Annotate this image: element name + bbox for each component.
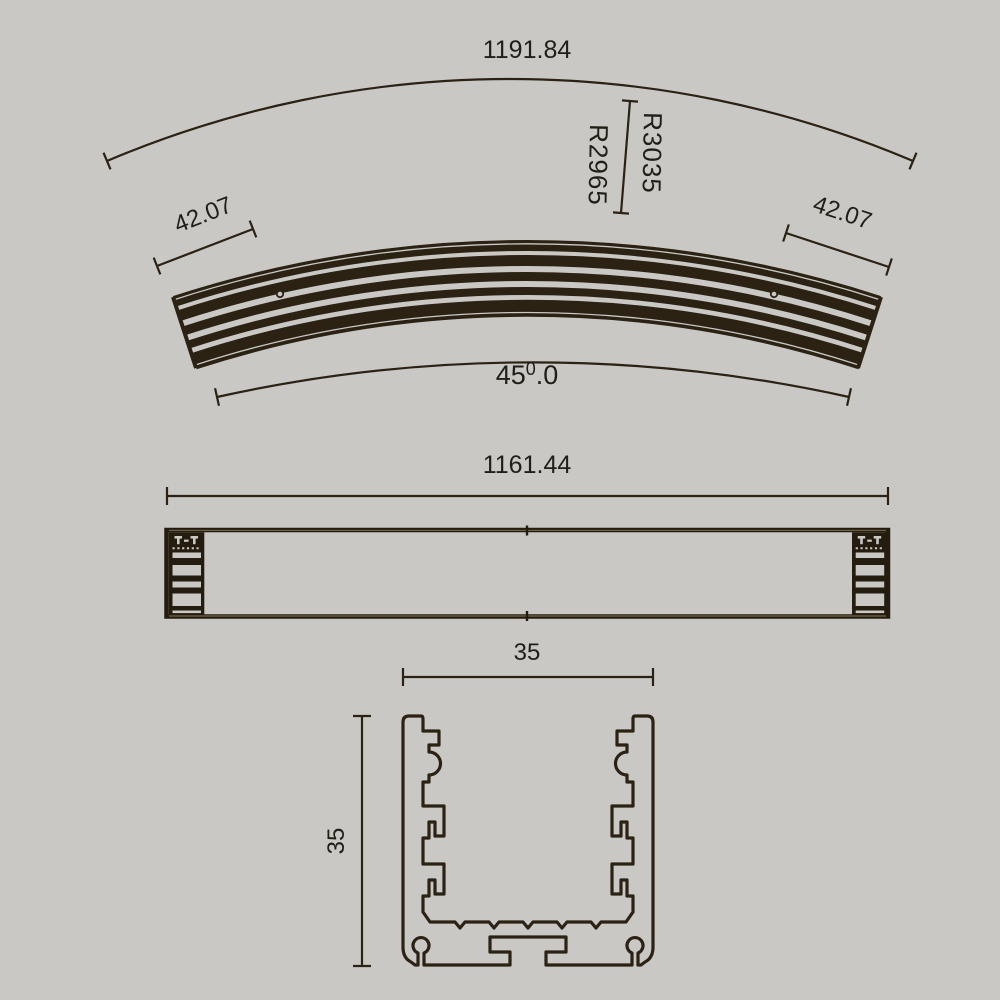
angle-dimension: 450.0 [215, 359, 851, 406]
arc-length-label: 1191.84 [483, 36, 572, 64]
cross-section-outline [403, 716, 653, 965]
cap-slot-2 [856, 565, 885, 576]
side-length-label: 1161.44 [483, 451, 572, 479]
cap-slot-4 [856, 594, 885, 607]
end-width-right-label: 42.07 [810, 191, 876, 235]
cap-slot-4 [173, 594, 202, 607]
side-view: 1161.44 [167, 451, 889, 621]
profile-side-body [167, 530, 889, 617]
cap-clip-stem-1 [177, 536, 180, 544]
radius-callout: R3035 R2965 [583, 100, 668, 213]
end-width-left-line [157, 229, 253, 266]
cap-clip-dash [867, 540, 872, 542]
cap-clip-stem-1 [860, 536, 863, 544]
technical-drawing-page: 1191.84 R3035 R2965 42.07 42.07 [0, 0, 1000, 1000]
angle-label-superscript: 0 [526, 359, 536, 379]
radius-inner-label: R2965 [583, 124, 614, 206]
cap-clip-stem-2 [193, 536, 196, 544]
cap-slot-2 [173, 565, 202, 576]
section-width-dimension [403, 668, 653, 686]
arc-length-dimension-line [107, 79, 913, 161]
end-cap-left [169, 532, 205, 614]
radius-callout-line [621, 101, 630, 213]
angle-label-fraction: .0 [536, 360, 559, 390]
cap-slot-5 [173, 611, 202, 614]
section-height-label: 35 [323, 828, 350, 855]
cap-slot-1 [173, 553, 202, 559]
angle-label: 450.0 [496, 359, 559, 390]
profile-drawing-canvas: 1191.84 R3035 R2965 42.07 42.07 [0, 0, 1000, 1000]
angle-label-base: 45 [496, 360, 526, 390]
side-length-dimension [167, 487, 888, 505]
section-width-label: 35 [514, 639, 541, 666]
profile-arc-band [173, 244, 881, 368]
radius-tick-bottom [613, 212, 629, 213]
cross-section-view: 35 35 [323, 639, 653, 966]
cap-clip-stem-2 [876, 536, 879, 544]
cap-clip-dash [184, 540, 189, 542]
mounting-hole-left [277, 291, 283, 297]
arc-length-dimension: 1191.84 [104, 36, 917, 169]
cap-slot-5 [856, 611, 885, 614]
radius-outer-label: R3035 [637, 112, 668, 194]
end-width-left-dimension: 42.07 [154, 191, 257, 274]
cap-slot-1 [856, 553, 885, 559]
radius-tick-top [622, 100, 638, 101]
curved-profile-view: 1191.84 R3035 R2965 42.07 42.07 [104, 36, 917, 406]
mounting-hole-right [771, 291, 777, 297]
end-cap-right [852, 532, 888, 614]
section-height-dimension: 35 [323, 716, 371, 966]
end-width-left-label: 42.07 [170, 191, 236, 238]
end-width-right-line [786, 233, 889, 267]
cap-slot-3 [856, 582, 885, 588]
end-width-right-dimension: 42.07 [783, 191, 892, 276]
cap-slot-3 [173, 582, 202, 588]
